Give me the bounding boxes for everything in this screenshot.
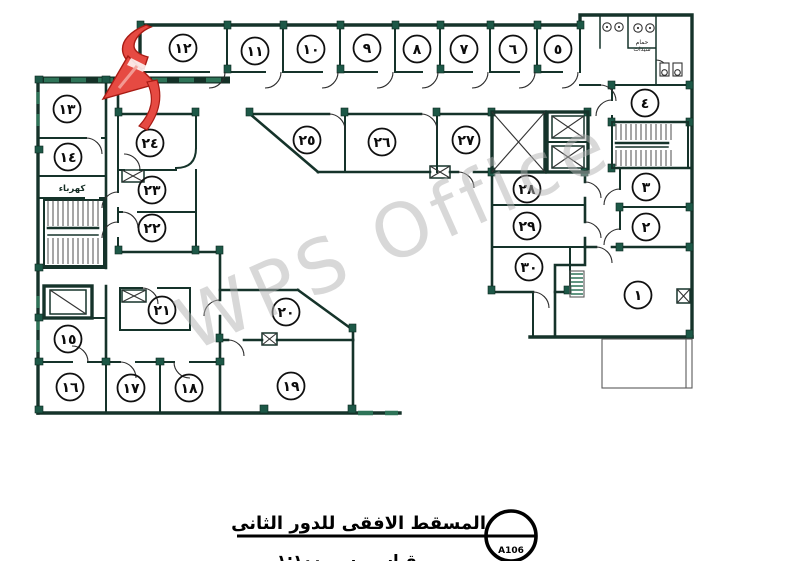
title-block: المسقط الافقى للدور الثانى A106 مقياس رس… [231,511,537,561]
room-number-label: ٢٢ [143,221,161,237]
room-marker: ٣٠ [516,254,543,281]
room-marker: ١٧ [118,375,145,402]
room-number-label: ١٠ [302,42,319,58]
floor-plan-sheet: حمام سيدات كهرباء ١٢٣٤٥٦٧٨٩١٠١١١٢١٣١٤١٥١… [0,0,794,561]
scale-note: مقياس رسم ١:١٠٠ [277,551,427,561]
drawing-title: المسقط الافقى للدور الثانى [231,513,486,534]
room-marker: ٢٢ [139,215,166,242]
room-number-label: ١٨ [180,381,198,397]
room-number-label: ٦ [509,42,518,58]
room-number-label: ٢٧ [457,133,475,149]
staircase-right [612,122,688,168]
room-number-label: ٧ [460,42,469,58]
terrace-outline [602,339,692,388]
room-marker: ١٥ [55,326,82,353]
room-number-label: ١٤ [59,150,76,166]
room-marker: ٢٤ [137,130,164,157]
room-marker: ٥ [545,36,572,63]
room-number-label: ٨ [413,42,422,58]
ladies-bathroom-label-line2: سيدات [633,46,650,53]
room-marker: ٢٦ [369,129,396,156]
room-number-label: ١٦ [61,380,79,396]
room-marker: ١١ [242,38,269,65]
room-number-label: ٢٤ [141,136,158,152]
room-number-label: ٢١ [153,303,170,319]
room-number-label: ٤ [641,96,650,112]
room-marker: ١٠ [298,36,325,63]
elevator-left [44,286,92,318]
room-marker: ١٨ [176,375,203,402]
room-number-label: ٢٥ [298,133,315,149]
room-number-label: ١١ [246,44,263,60]
room-marker: ١٣ [54,96,81,123]
room-number-label: ٢ [642,220,651,236]
room-marker: ١٩ [278,373,305,400]
room-number-label: ١ [634,288,643,304]
room-number-label: ١٩ [282,379,300,395]
room-marker: ١٦ [57,374,84,401]
room-marker: ١ [625,282,652,309]
drawing-ref-label: A106 [498,546,524,556]
room-number-label: ٢٦ [373,135,391,151]
room-marker: ٢٥ [294,127,321,154]
room-marker: ٢ [633,214,660,241]
room-marker: ٣ [633,174,660,201]
door-hatch-room1 [570,271,584,297]
room-marker: ١٤ [55,144,82,171]
ladies-bathroom-label-line1: حمام [636,39,649,46]
room-number-label: ١٢ [174,41,192,57]
room-marker: ٨ [404,36,431,63]
room-marker: ٩ [354,35,381,62]
room-marker: ٦ [500,36,527,63]
room-marker: ٢٣ [139,177,166,204]
room-number-label: ١٣ [58,102,76,118]
room-number-label: ١٧ [122,381,140,397]
room-number-label: ٣٠ [520,260,537,276]
room-number-label: ٩ [363,41,372,57]
room-number-label: ٢٣ [143,183,161,199]
bathroom-fixtures: حمام سيدات [600,15,682,85]
electrical-room-label: كهرباء [59,184,86,194]
room-marker: ٤ [632,90,659,117]
floor-plan-svg: حمام سيدات كهرباء ١٢٣٤٥٦٧٨٩١٠١١١٢١٣١٤١٥١… [0,0,794,561]
room-marker: ١٢ [170,35,197,62]
room-number-label: ٣ [642,180,651,196]
room-marker: ٧ [451,36,478,63]
room-number-label: ١٥ [59,332,76,348]
room-number-label: ٥ [554,42,563,58]
room-marker: ٢٧ [453,127,480,154]
